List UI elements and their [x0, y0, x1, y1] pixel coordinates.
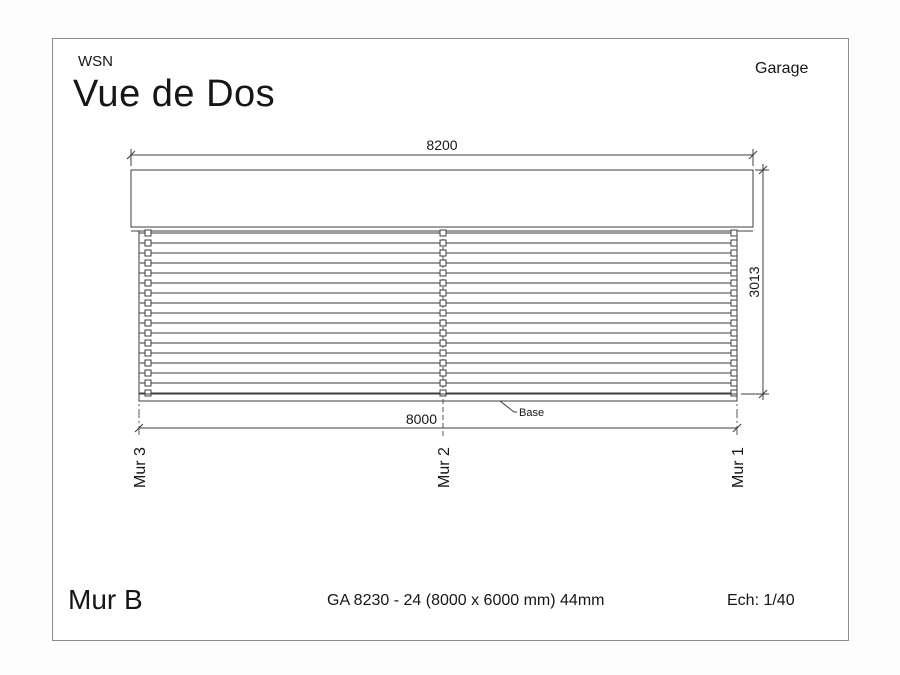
log-end-marker: [145, 350, 151, 356]
log-end-marker: [145, 310, 151, 316]
log-end-marker: [731, 320, 737, 326]
log-end-marker: [145, 300, 151, 306]
log-end-marker: [440, 230, 446, 236]
log-end-marker: [731, 300, 737, 306]
log-end-marker: [145, 340, 151, 346]
log-end-marker: [440, 370, 446, 376]
log-end-marker: [440, 260, 446, 266]
log-end-marker: [731, 260, 737, 266]
log-end-marker: [731, 370, 737, 376]
wall-marker-mur1: Mur 1: [730, 447, 747, 488]
roof-edge-panel: [131, 170, 753, 231]
log-end-marker: [440, 340, 446, 346]
log-end-marker: [731, 330, 737, 336]
log-end-marker: [145, 390, 151, 396]
base-label: Base: [519, 407, 544, 419]
log-end-marker: [731, 310, 737, 316]
product-reference: GA 8230 - 24 (8000 x 6000 mm) 44mm: [327, 592, 604, 610]
log-end-marker: [731, 270, 737, 276]
dimension-right: 3013: [741, 164, 769, 400]
log-end-marker: [440, 350, 446, 356]
log-end-marker: [145, 370, 151, 376]
log-end-marker: [145, 230, 151, 236]
wall-name: Mur B: [68, 584, 143, 616]
log-end-marker: [145, 240, 151, 246]
log-end-marker: [145, 330, 151, 336]
dimension-top-value: 8200: [426, 137, 457, 153]
base-leader-line: [500, 401, 517, 412]
log-end-marker: [145, 360, 151, 366]
log-end-marker: [440, 290, 446, 296]
log-end-marker: [145, 380, 151, 386]
dimension-top: 8200: [127, 137, 757, 166]
log-end-marker: [440, 330, 446, 336]
log-end-marker: [440, 380, 446, 386]
log-end-marker: [731, 350, 737, 356]
dimension-right-value: 3013: [746, 266, 762, 297]
drawing-sheet: WSN Vue de Dos Garage: [0, 0, 900, 675]
log-end-marker: [145, 320, 151, 326]
log-end-marker: [731, 250, 737, 256]
wall-planks: [139, 233, 737, 393]
log-end-marker: [145, 250, 151, 256]
scale-label: Ech: 1/40: [727, 592, 795, 610]
log-end-marker: [731, 240, 737, 246]
log-end-marker: [440, 250, 446, 256]
log-end-marker: [145, 270, 151, 276]
dimension-bottom-value: 8000: [406, 411, 437, 427]
log-end-marker: [145, 290, 151, 296]
technical-drawing: Base 8200 3013 8000 Mur 3: [0, 0, 900, 675]
log-end-marker: [731, 360, 737, 366]
log-end-marker: [440, 300, 446, 306]
wall-marker-mur3: Mur 3: [132, 447, 149, 488]
log-end-marker: [440, 310, 446, 316]
log-end-marker: [731, 340, 737, 346]
base-band: Base: [139, 394, 737, 419]
log-end-marker: [731, 390, 737, 396]
log-end-marker: [145, 280, 151, 286]
wall-marker-mur2: Mur 2: [436, 447, 453, 488]
log-end-marker: [731, 280, 737, 286]
log-end-marker: [731, 230, 737, 236]
log-end-marker: [145, 260, 151, 266]
log-end-marker: [440, 280, 446, 286]
log-end-marker: [440, 240, 446, 246]
log-end-marker: [440, 390, 446, 396]
dimension-bottom: 8000: [135, 411, 741, 432]
log-end-marker: [731, 380, 737, 386]
log-end-marker: [440, 320, 446, 326]
log-end-marker: [440, 270, 446, 276]
log-end-marker: [440, 360, 446, 366]
log-end-marker: [731, 290, 737, 296]
